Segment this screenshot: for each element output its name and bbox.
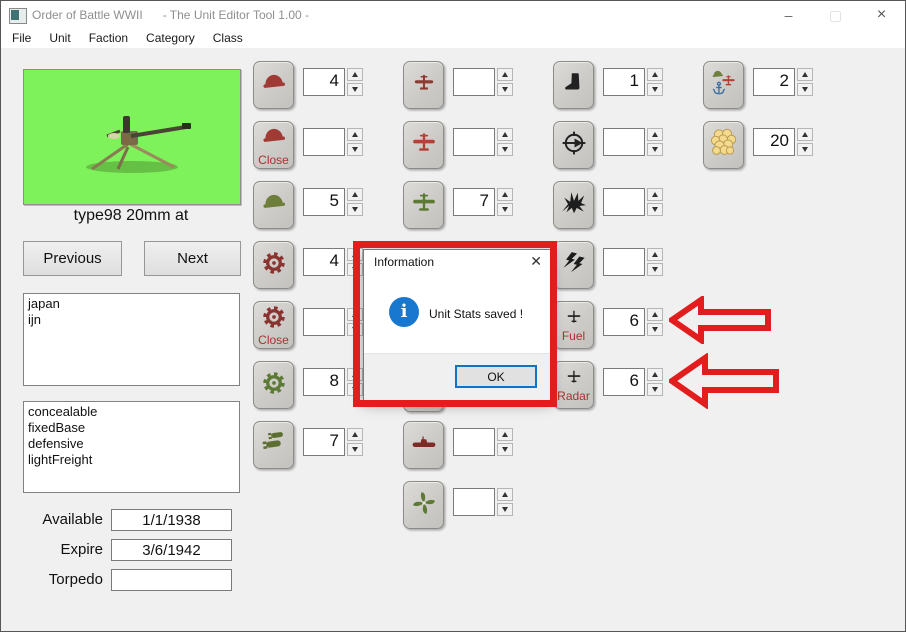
maximize-icon[interactable]: ▢ [813,1,858,29]
stat-spinner: 8 [303,368,363,396]
triangle-down-icon [652,207,658,212]
triangle-up-icon [352,312,358,317]
stat-button-gear-red[interactable]: Close [253,301,294,349]
stat-value-field[interactable] [453,68,495,96]
triangle-down-icon [352,147,358,152]
boot-black-icon [561,70,587,101]
available-label: Available [15,509,103,531]
stat-value-field[interactable] [453,128,495,156]
triangle-up-icon [652,252,658,257]
helmet-red-icon [261,124,287,155]
annotation-arrow-radar [669,353,779,409]
triangle-down-icon [652,387,658,392]
spin-up-button[interactable] [347,128,363,141]
spin-down-button[interactable] [347,383,363,396]
triangle-up-icon [352,432,358,437]
spin-up-button[interactable] [647,128,663,141]
spin-down-button[interactable] [497,503,513,516]
triangle-up-icon [652,372,658,377]
spin-down-button[interactable] [347,203,363,216]
stat-card-label: Radar [557,391,590,402]
dialog-title: Information [374,255,434,269]
triangle-down-icon [652,147,658,152]
spin-up-button[interactable] [347,248,363,261]
explosion-black-icon [561,190,587,221]
stat-value-field[interactable]: 2 [753,68,795,96]
stat-button-submarine-red[interactable] [403,421,444,469]
spin-up-button[interactable] [647,308,663,321]
stat-button-plane-small[interactable]: Radar [553,361,594,409]
spin-down-button[interactable] [647,143,663,156]
spin-up-button[interactable] [647,248,663,261]
ok-button[interactable]: OK [455,365,537,388]
stat-spinner [453,68,513,96]
triangle-up-icon [802,72,808,77]
stat-value-field[interactable]: 4 [303,68,345,96]
stat-value-field[interactable]: 7 [453,188,495,216]
stat-button-plane-small[interactable]: Fuel [553,301,594,349]
spin-up-button[interactable] [797,68,813,81]
bombs-green-icon [261,430,287,461]
triangle-down-icon [352,87,358,92]
menu-class[interactable]: Class [204,29,252,48]
next-button[interactable]: Next [144,241,241,276]
stat-value-field[interactable] [453,428,495,456]
spin-up-button[interactable] [497,188,513,201]
stat-spinner: 4 [303,68,363,96]
stat-spinner: 2 [753,68,813,96]
triangle-down-icon [502,147,508,152]
gear-red-icon [261,250,287,281]
factions-listbox[interactable]: japan ijn [23,293,240,386]
stat-spinner [603,248,663,276]
stat-card-label: Fuel [562,331,585,342]
stat-spinner [453,128,513,156]
spin-down-button[interactable] [647,203,663,216]
stat-spinner: 1 [603,68,663,96]
triangle-down-icon [502,207,508,212]
spin-up-button[interactable] [647,188,663,201]
spin-down-button[interactable] [647,323,663,336]
triangle-down-icon [802,147,808,152]
triangle-down-icon [502,87,508,92]
triangle-down-icon [502,447,508,452]
spin-up-button[interactable] [347,368,363,381]
menu-bar: File Unit Faction Category Class [1,29,905,48]
stat-spinner: 5 [303,188,363,216]
spin-up-button[interactable] [497,68,513,81]
triangle-down-icon [652,87,658,92]
stat-spinner [303,128,363,156]
plane-green-icon [411,190,437,221]
spin-up-button[interactable] [347,68,363,81]
window-title: Order of Battle WWII - The Unit Editor T… [32,1,309,29]
stat-button-helmet-green[interactable] [253,181,294,229]
triangle-up-icon [502,192,508,197]
traits-listbox[interactable]: concealable fixedBase defensive lightFre… [23,401,240,493]
stat-button-propeller-green[interactable] [403,481,444,529]
triangle-up-icon [652,132,658,137]
stat-value-field[interactable]: 7 [303,428,345,456]
stat-card-label: Close [258,335,289,346]
spin-up-button[interactable] [347,188,363,201]
triangle-up-icon [352,132,358,137]
app-window: Order of Battle WWII - The Unit Editor T… [0,0,906,632]
menu-category[interactable]: Category [137,29,204,48]
plane-small-icon [565,368,583,391]
expire-label: Expire [15,539,103,561]
helmet-red-icon [261,70,287,101]
gear-red-icon [261,304,287,335]
spin-down-button[interactable] [347,263,363,276]
app-icon [9,8,27,24]
plane-small-icon [565,308,583,331]
stat-value-field[interactable] [453,488,495,516]
triangle-down-icon [652,267,658,272]
stat-button-helmet-red[interactable] [253,61,294,109]
plane-red2-icon [411,130,437,161]
stat-button-lightning-black[interactable] [553,241,594,289]
minimize-icon[interactable]: – [766,1,811,29]
stat-button-scope-black[interactable] [553,121,594,169]
triangle-down-icon [352,447,358,452]
lightning-black-icon [561,250,587,281]
stat-button-plane-red2[interactable] [403,121,444,169]
propeller-green-icon [411,490,437,521]
triangle-down-icon [352,267,358,272]
torpedo-field[interactable] [111,569,232,591]
spin-down-button[interactable] [347,323,363,336]
spin-up-button[interactable] [347,428,363,441]
triangle-down-icon [802,87,808,92]
stat-value-field[interactable] [603,188,645,216]
dialog-close-icon[interactable]: ✕ [530,253,542,270]
spin-up-button[interactable] [797,128,813,141]
spin-down-button[interactable] [347,83,363,96]
menu-unit[interactable]: Unit [40,29,79,48]
triangle-up-icon [352,372,358,377]
info-icon: i [389,297,419,327]
coins-gold-icon [711,128,737,163]
spin-down-button[interactable] [497,143,513,156]
stat-value-field[interactable] [603,248,645,276]
spin-down-button[interactable] [497,443,513,456]
spin-up-button[interactable] [497,128,513,141]
triangle-up-icon [502,492,508,497]
stat-spinner: 4 [303,248,363,276]
title-bar: Order of Battle WWII - The Unit Editor T… [1,1,905,29]
triangle-up-icon [352,72,358,77]
stat-button-helmet-red[interactable]: Close [253,121,294,169]
triangle-up-icon [802,132,808,137]
menu-faction[interactable]: Faction [80,29,137,48]
spin-down-button[interactable] [347,143,363,156]
stat-value-field[interactable]: 5 [303,188,345,216]
stat-value-field[interactable] [603,128,645,156]
stat-spinner [453,488,513,516]
unit-sprite-at-gun [24,70,240,204]
stat-button-gear-red[interactable] [253,241,294,289]
previous-button[interactable]: Previous [23,241,122,276]
stat-button-coins-gold[interactable] [703,121,744,169]
plane-red-icon [413,72,435,99]
unit-preview-image [23,69,241,205]
stat-spinner: 20 [753,128,813,156]
triangle-down-icon [502,507,508,512]
stat-spinner: 6 [603,308,663,336]
stat-spinner [453,428,513,456]
stat-value-field[interactable]: 4 [303,248,345,276]
stat-spinner: 7 [453,188,513,216]
triangle-up-icon [652,72,658,77]
triangle-down-icon [352,207,358,212]
spin-down-button[interactable] [497,83,513,96]
scope-black-icon [561,130,587,161]
spin-up-button[interactable] [497,488,513,501]
stat-button-explosion-black[interactable] [553,181,594,229]
stat-value-field[interactable] [303,308,345,336]
spin-down-button[interactable] [647,83,663,96]
stat-spinner: 7 [303,428,363,456]
close-icon[interactable]: × [859,1,904,29]
triangle-down-icon [352,327,358,332]
triangle-up-icon [352,192,358,197]
triangle-down-icon [352,387,358,392]
stat-value-field[interactable]: 1 [603,68,645,96]
stat-spinner: 6 [603,368,663,396]
information-dialog: Information ✕ i Unit Stats saved ! OK [363,249,552,401]
stat-value-field[interactable]: 6 [603,368,645,396]
spin-down-button[interactable] [797,143,813,156]
torpedo-label: Torpedo [15,569,103,591]
triangle-up-icon [502,132,508,137]
stat-spinner [303,308,363,336]
menu-file[interactable]: File [3,29,40,48]
stat-button-plane-green[interactable] [403,181,444,229]
spin-up-button[interactable] [647,68,663,81]
triangle-up-icon [652,192,658,197]
expire-field[interactable]: 3/6/1942 [111,539,232,561]
stat-button-gear-green[interactable] [253,361,294,409]
spin-down-button[interactable] [347,443,363,456]
unit-name: type98 20mm at [23,207,239,225]
stat-spinner [603,128,663,156]
annotation-arrow-fuel [669,296,771,344]
available-field[interactable]: 1/1/1938 [111,509,232,531]
spin-down-button[interactable] [647,383,663,396]
stat-button-transport-combo[interactable] [703,61,744,109]
helmet-green-icon [261,190,287,221]
dialog-message: Unit Stats saved ! [429,307,523,321]
spin-down-button[interactable] [647,263,663,276]
stat-spinner [603,188,663,216]
spin-up-button[interactable] [647,368,663,381]
stat-button-plane-red[interactable] [403,61,444,109]
stat-button-boot-black[interactable] [553,61,594,109]
stat-card-label: Close [258,155,289,166]
triangle-up-icon [502,72,508,77]
submarine-red-icon [411,430,437,461]
stat-value-field[interactable]: 20 [753,128,795,156]
spin-up-button[interactable] [497,428,513,441]
triangle-up-icon [502,432,508,437]
triangle-down-icon [652,327,658,332]
spin-down-button[interactable] [797,83,813,96]
triangle-up-icon [352,252,358,257]
transport-combo-icon [711,68,737,103]
stat-button-bombs-green[interactable] [253,421,294,469]
triangle-up-icon [652,312,658,317]
spin-down-button[interactable] [497,203,513,216]
stat-value-field[interactable]: 6 [603,308,645,336]
stat-value-field[interactable]: 8 [303,368,345,396]
gear-green-icon [261,370,287,401]
spin-up-button[interactable] [347,308,363,321]
stat-value-field[interactable] [303,128,345,156]
